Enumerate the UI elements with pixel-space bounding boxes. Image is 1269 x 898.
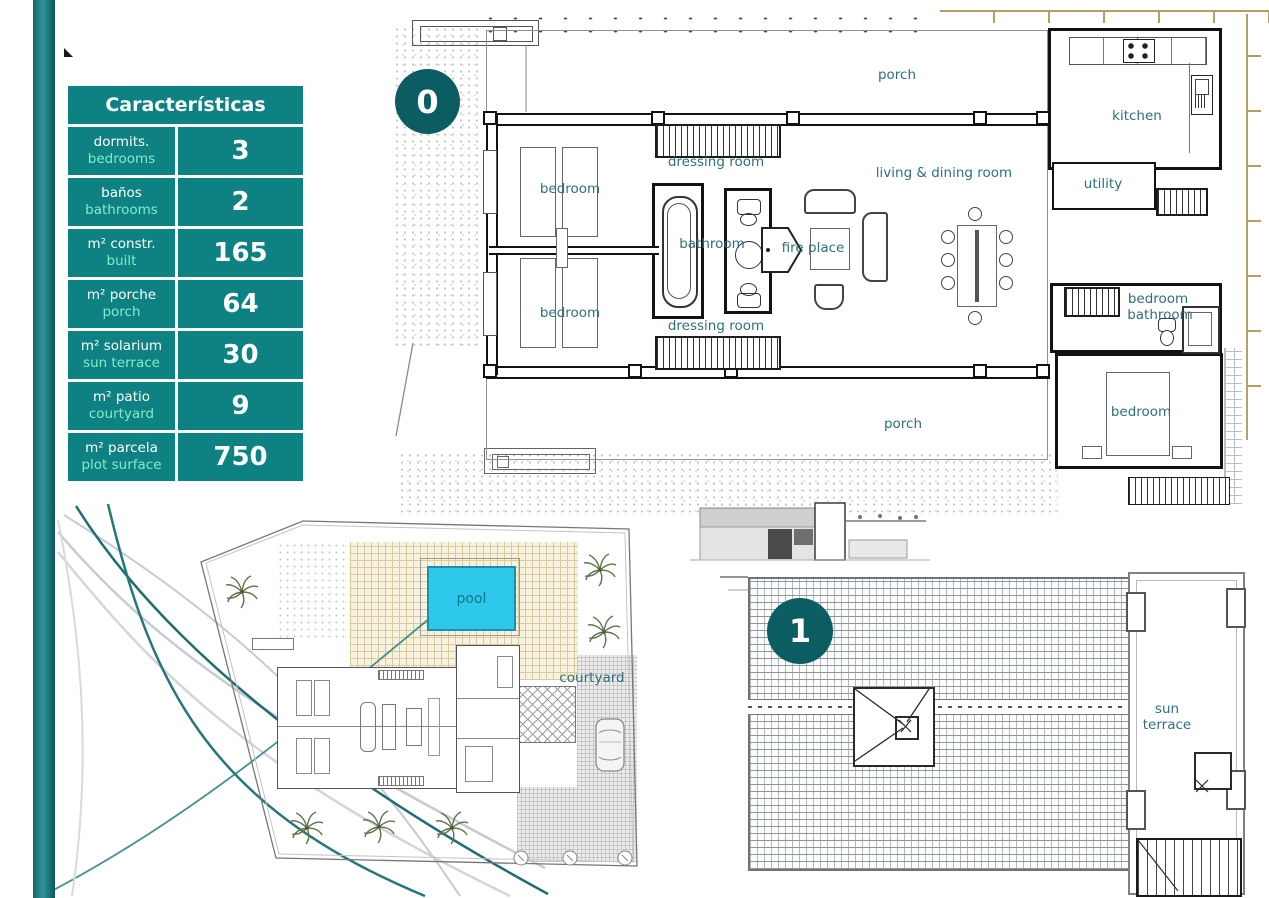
label-suite-bathroom: bathroom — [1110, 307, 1210, 323]
label-fireplace: fire place — [768, 240, 858, 256]
row-label-es: m² porche — [87, 287, 156, 304]
row-value: 165 — [178, 229, 303, 277]
driveway-bottom — [517, 787, 637, 862]
characteristics-title: Características — [68, 86, 303, 124]
dining-chair — [999, 253, 1013, 267]
label-courtyard: courtyard — [542, 670, 642, 686]
dining-chair — [941, 230, 955, 244]
label-living-dining: living & dining room — [859, 165, 1029, 181]
bidet — [737, 293, 761, 308]
label-bedroom3: bedroom — [1091, 404, 1191, 420]
characteristics-table: Características dormits.bedrooms 3 baños… — [65, 83, 306, 484]
label-pool: pool — [457, 591, 487, 607]
table-row-bathrooms: bañosbathrooms 2 — [68, 178, 303, 226]
pilaster — [1226, 588, 1246, 628]
pilaster — [1126, 592, 1146, 632]
row-label-en: sun terrace — [83, 355, 160, 372]
nightstand — [556, 228, 568, 268]
pillar — [483, 111, 497, 125]
sofa-top — [804, 189, 856, 214]
dressing-room-bottom-wardrobe — [655, 336, 781, 370]
mini-house-left-wing — [277, 667, 457, 789]
window — [483, 272, 497, 336]
dining-chair — [968, 207, 982, 221]
label-utility: utility — [1053, 176, 1153, 192]
pillar — [973, 364, 987, 378]
bedroom-divider-wall — [489, 246, 659, 255]
dining-chair — [941, 276, 955, 290]
dining-chair — [941, 253, 955, 267]
row-value: 750 — [178, 433, 303, 481]
skylight-vent — [895, 716, 919, 740]
fence-right — [1246, 14, 1261, 440]
pillar — [628, 364, 642, 378]
site-planter — [252, 638, 294, 650]
table-row-courtyard: m² patiocourtyard 9 — [68, 382, 303, 430]
fence-top — [940, 10, 1269, 23]
row-label-en: plot surface — [81, 457, 161, 474]
dressing-room-top-wardrobe — [655, 124, 781, 158]
label-bathroom: bathroom — [662, 236, 762, 252]
label-dressing-top: dressing room — [646, 154, 786, 170]
table-row-plot: m² parcelaplot surface 750 — [68, 433, 303, 481]
pillar — [786, 111, 800, 125]
window — [483, 150, 497, 214]
gravel-area — [277, 542, 350, 640]
row-label-en: bedrooms — [88, 151, 155, 168]
label-kitchen: kitchen — [1087, 108, 1187, 124]
nightstand — [1172, 446, 1192, 459]
pillar — [651, 111, 665, 125]
pillar — [483, 364, 497, 378]
armchair — [814, 284, 844, 310]
label-sun-terrace: sun terrace — [1131, 701, 1203, 733]
terrace-skylight — [1194, 752, 1232, 790]
pool: pool — [427, 566, 516, 631]
dining-table — [957, 225, 997, 307]
row-label-en: porch — [102, 304, 140, 321]
row-label-es: m² solarium — [81, 338, 162, 355]
nightstand — [1082, 446, 1102, 459]
roof-skylight — [853, 687, 935, 767]
pilaster — [1126, 790, 1146, 830]
mini-house-right-wing — [456, 645, 520, 793]
pillar — [973, 111, 987, 125]
table-row-built: m² constr.built 165 — [68, 229, 303, 277]
bed — [562, 258, 598, 348]
row-label-es: baños — [101, 185, 142, 202]
corner-triangle-decoration — [64, 48, 73, 57]
brochure-page: Características dormits.bedrooms 3 baños… — [0, 0, 1269, 898]
row-value: 64 — [178, 280, 303, 328]
terrace-stairs — [1136, 838, 1242, 897]
row-label-en: bathrooms — [85, 202, 158, 219]
dining-chair — [999, 230, 1013, 244]
exterior-stairs — [1128, 477, 1230, 505]
kitchen-sink — [1191, 75, 1213, 115]
roof-ridge — [748, 699, 1128, 715]
row-label-es: m² parcela — [85, 440, 158, 457]
row-label-es: m² constr. — [87, 236, 155, 253]
table-row-bedrooms: dormits.bedrooms 3 — [68, 127, 303, 175]
toilet-bowl — [1160, 330, 1174, 346]
row-label-en: courtyard — [89, 406, 154, 423]
row-value: 30 — [178, 331, 303, 379]
row-value: 9 — [178, 382, 303, 430]
floor-1-badge: 1 — [767, 598, 833, 664]
row-label-en: built — [107, 253, 137, 270]
table-row-solarium: m² solariumsun terrace 30 — [68, 331, 303, 379]
bed — [520, 258, 556, 348]
pillar — [1036, 364, 1050, 378]
sofa-side — [862, 212, 888, 282]
table-row-porch: m² porcheporch 64 — [68, 280, 303, 328]
label-bedroom-bottom: bedroom — [510, 305, 630, 321]
row-label-es: m² patio — [93, 389, 150, 406]
kitchen-block — [1048, 28, 1222, 170]
row-value: 2 — [178, 178, 303, 226]
stove — [1123, 39, 1155, 63]
label-porch-top: porch — [847, 67, 947, 83]
label-suite-bedroom: bedroom — [1108, 291, 1208, 307]
stairs-utility — [1156, 188, 1208, 216]
label-dressing-bottom: dressing room — [646, 318, 786, 334]
dining-chair — [968, 311, 982, 325]
label-porch-bottom: porch — [853, 416, 953, 432]
pillar — [1036, 111, 1050, 125]
row-label-es: dormits. — [94, 134, 150, 151]
dining-chair — [999, 276, 1013, 290]
left-accent-bar — [33, 0, 55, 898]
label-bedroom-top: bedroom — [510, 181, 630, 197]
floor-0-badge: 0 — [395, 69, 460, 134]
courtyard-paving — [519, 686, 576, 743]
row-value: 3 — [178, 127, 303, 175]
